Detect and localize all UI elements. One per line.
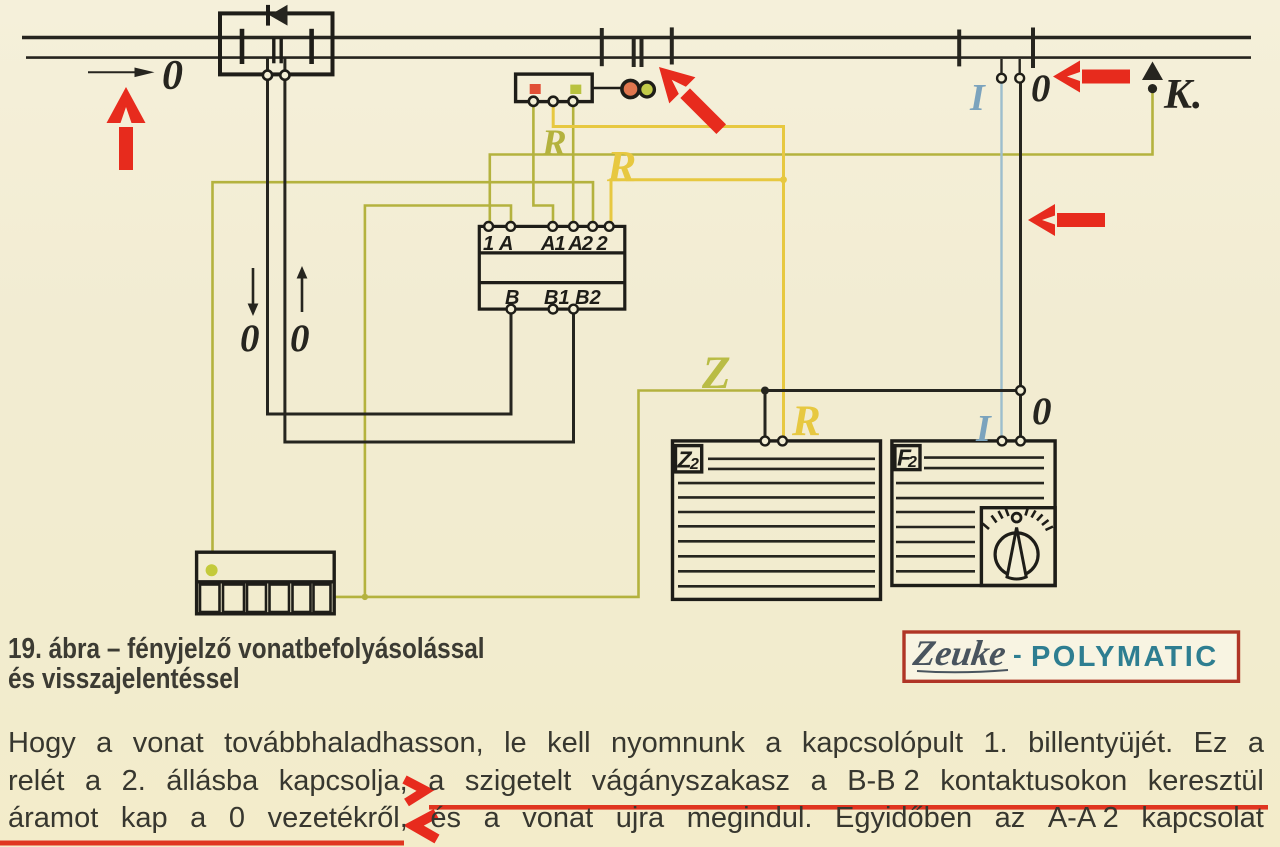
svg-text:K.: K. <box>1163 72 1203 118</box>
svg-text:Z: Z <box>701 347 731 399</box>
svg-text:I: I <box>969 77 986 119</box>
svg-text:0: 0 <box>162 53 183 99</box>
svg-text:R: R <box>606 142 636 191</box>
svg-text:0: 0 <box>1031 67 1051 110</box>
svg-text:B1 B2: B1 B2 <box>544 287 601 309</box>
svg-text:A1 A2 2: A1 A2 2 <box>540 233 608 255</box>
svg-text:0: 0 <box>1032 390 1052 433</box>
svg-text:Zeuke: Zeuke <box>910 633 1009 673</box>
svg-text:2: 2 <box>907 454 917 471</box>
svg-text:0: 0 <box>240 317 260 360</box>
svg-text:1 A: 1 A <box>483 233 513 255</box>
svg-text:B: B <box>505 287 519 309</box>
svg-text:R: R <box>541 123 567 164</box>
svg-text:2: 2 <box>689 456 699 473</box>
svg-text:I: I <box>975 408 992 450</box>
svg-text:R: R <box>791 398 821 445</box>
svg-text:0: 0 <box>290 317 310 360</box>
svg-text:-: - <box>1013 639 1022 669</box>
svg-text:POLYMATIC: POLYMATIC <box>1031 641 1219 673</box>
